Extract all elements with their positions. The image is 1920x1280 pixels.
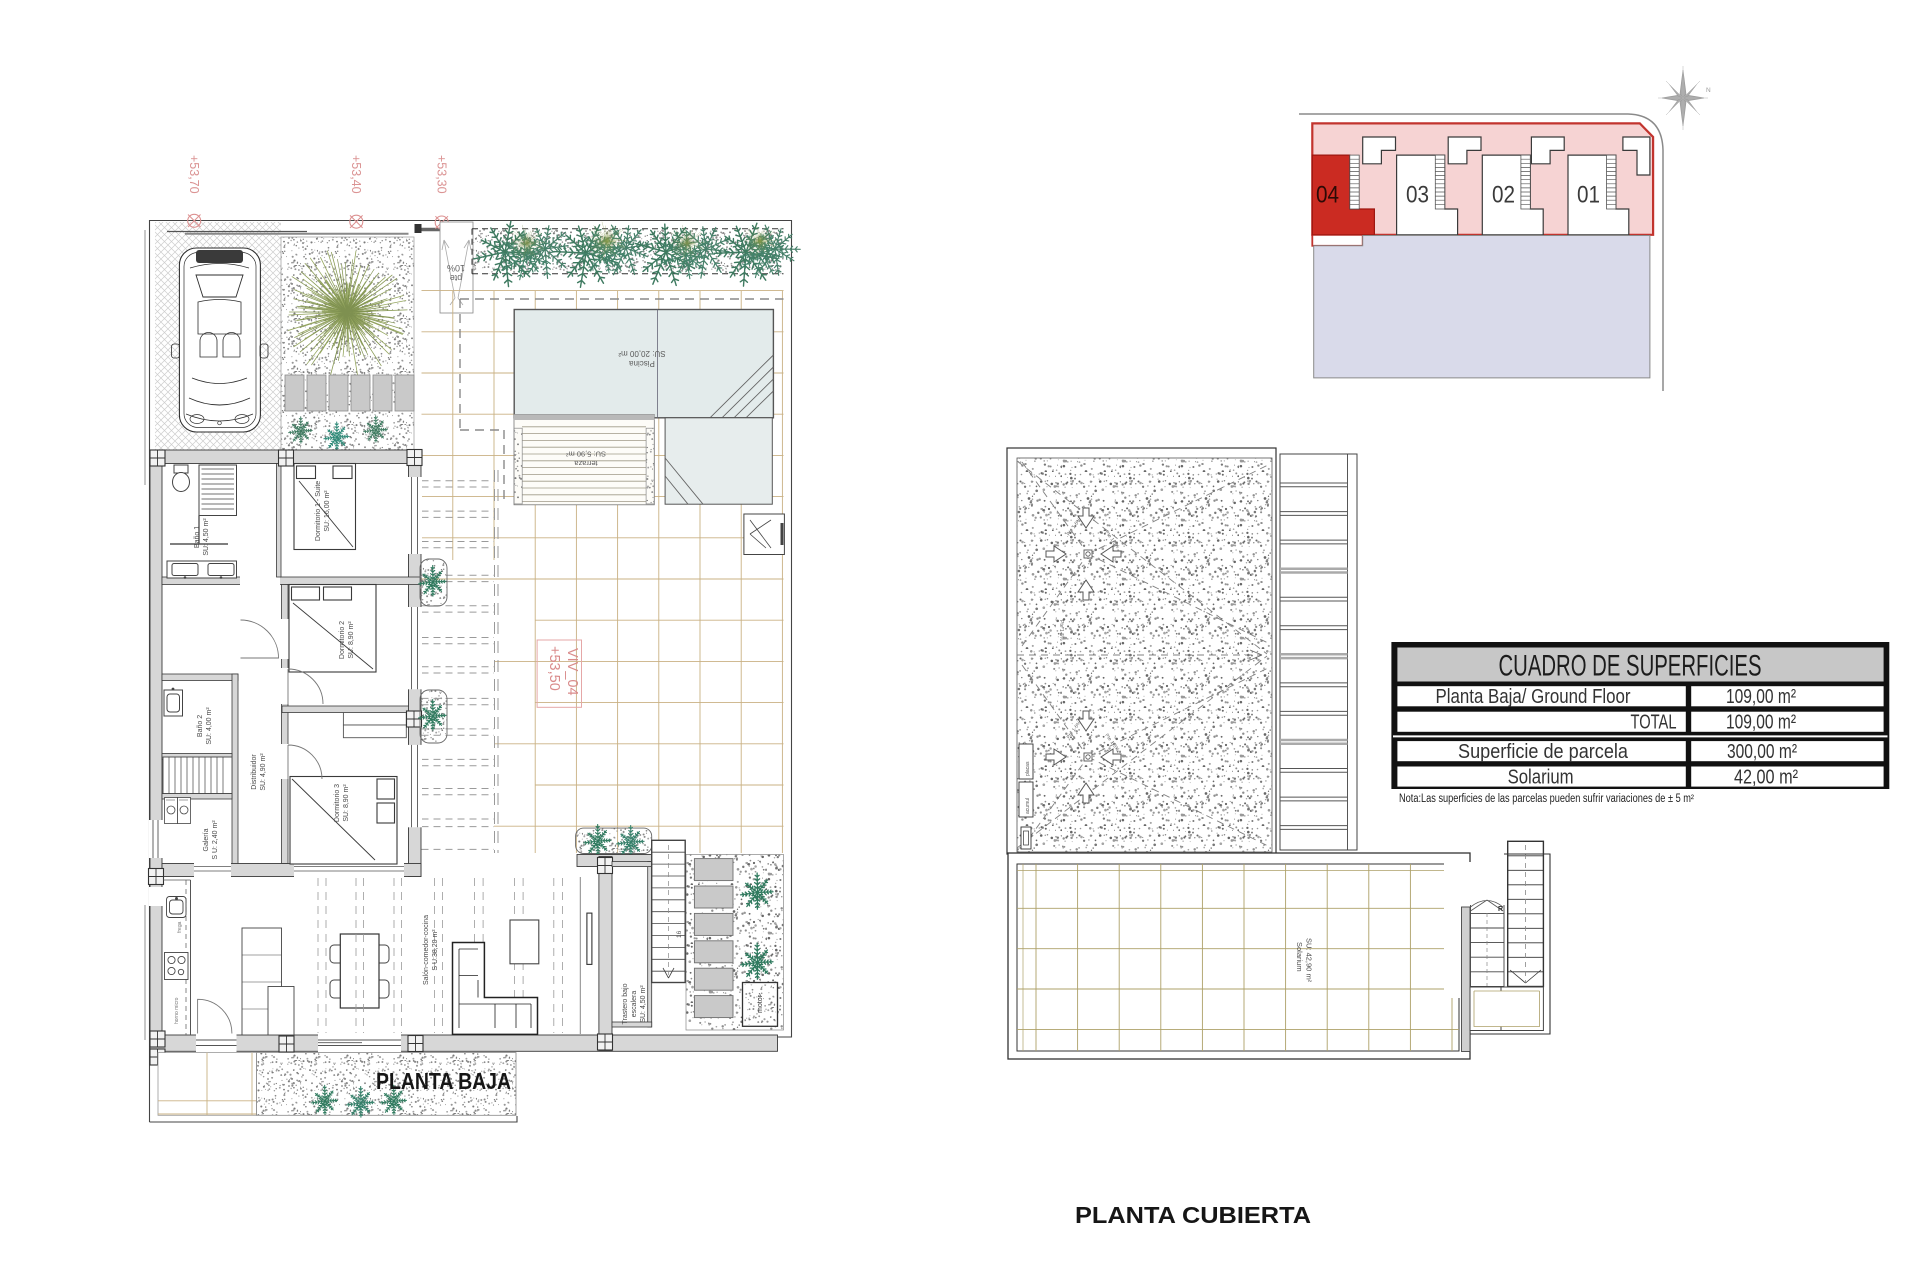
svg-text:horno micro: horno micro xyxy=(174,997,180,1024)
svg-text:SU: 42,90 m²: SU: 42,90 m² xyxy=(1305,938,1314,983)
svg-text:Trastero bajo: Trastero bajo xyxy=(622,983,629,1024)
svg-text:terraza: terraza xyxy=(574,459,598,468)
svg-text:Dormitorio 1 - Suite: Dormitorio 1 - Suite xyxy=(315,481,322,541)
svg-text:Distribuidor: Distribuidor xyxy=(251,754,258,790)
svg-text:Planta Baja/ Ground Floor: Planta Baja/ Ground Floor xyxy=(1436,686,1631,708)
svg-text:SU: 16,00 m²: SU: 16,00 m² xyxy=(324,490,331,532)
svg-text:escalera: escalera xyxy=(631,991,638,1018)
svg-text:Pte 1-5%: Pte 1-5% xyxy=(1058,620,1064,641)
svg-text:42,00 m²: 42,00 m² xyxy=(1734,766,1798,788)
svg-text:pte: pte xyxy=(450,273,463,283)
svg-text:R: R xyxy=(1498,906,1503,913)
svg-text:SU: 4,00 m²: SU: 4,00 m² xyxy=(206,707,213,745)
svg-text:+53,30: +53,30 xyxy=(435,155,449,194)
svg-text:+53,40: +53,40 xyxy=(349,155,363,194)
svg-text:PLANTA CUBIERTA: PLANTA CUBIERTA xyxy=(1075,1202,1311,1228)
svg-text:04: 04 xyxy=(1316,182,1339,209)
svg-text:Galería: Galería xyxy=(203,828,210,851)
svg-text:SU: 5,90 m²: SU: 5,90 m² xyxy=(565,450,606,459)
svg-text:+53,70: +53,70 xyxy=(187,155,201,194)
svg-text:CUADRO DE SUPERFICIES: CUADRO DE SUPERFICIES xyxy=(1499,650,1762,683)
svg-text:N: N xyxy=(1706,87,1711,94)
svg-text:Dormitorio 3: Dormitorio 3 xyxy=(334,784,341,822)
svg-text:SU: 4,50 m²: SU: 4,50 m² xyxy=(203,518,210,556)
svg-text:SU: 8,90 m²: SU: 8,90 m² xyxy=(348,621,355,659)
svg-text:SU: 8,90 m²: SU: 8,90 m² xyxy=(343,784,350,822)
svg-text:Solarium: Solarium xyxy=(1295,942,1304,972)
svg-text:+53,50: +53,50 xyxy=(546,646,562,691)
svg-text:Dormitorio 2: Dormitorio 2 xyxy=(339,621,346,659)
svg-text:10%: 10% xyxy=(447,263,465,273)
svg-text:Baño 1: Baño 1 xyxy=(194,526,201,548)
svg-text:109,00 m²: 109,00 m² xyxy=(1726,712,1796,734)
svg-text:Solarium: Solarium xyxy=(1508,766,1574,788)
svg-text:Nota:Las superficies de las pa: Nota:Las superficies de las parcelas pue… xyxy=(1399,793,1694,805)
svg-text:Baño 2: Baño 2 xyxy=(197,715,204,737)
svg-text:Salón-comedor-cocina: Salón-comedor-cocina xyxy=(423,915,430,985)
svg-text:03: 03 xyxy=(1406,182,1429,209)
svg-text:motor: motor xyxy=(757,994,764,1013)
svg-text:S U: 2,40 m²: S U: 2,40 m² xyxy=(212,820,219,860)
svg-text:SU: 4,90 m²: SU: 4,90 m² xyxy=(260,753,267,791)
svg-text:S U:38,20 m²: S U:38,20 m² xyxy=(432,929,439,971)
svg-text:Piscina: Piscina xyxy=(629,359,655,368)
svg-text:02: 02 xyxy=(1492,182,1515,209)
svg-text:VIV_04: VIV_04 xyxy=(564,648,580,696)
svg-text:SU: 4,50 m²: SU: 4,50 m² xyxy=(640,985,647,1023)
svg-text:Superficie de parcela: Superficie de parcela xyxy=(1458,741,1629,763)
svg-text:PLANTA BAJA: PLANTA BAJA xyxy=(376,1068,511,1094)
svg-text:109,00 m²: 109,00 m² xyxy=(1726,686,1796,708)
svg-text:300,00 m²: 300,00 m² xyxy=(1727,741,1797,763)
svg-text:16: 16 xyxy=(676,930,683,938)
svg-text:SU: 20,00 m²: SU: 20,00 m² xyxy=(618,349,665,358)
svg-text:acumul: acumul xyxy=(1025,798,1031,814)
svg-text:placas: placas xyxy=(1025,761,1031,776)
svg-text:01: 01 xyxy=(1577,182,1600,209)
svg-text:frega: frega xyxy=(177,921,183,933)
svg-text:TOTAL: TOTAL xyxy=(1631,712,1677,734)
